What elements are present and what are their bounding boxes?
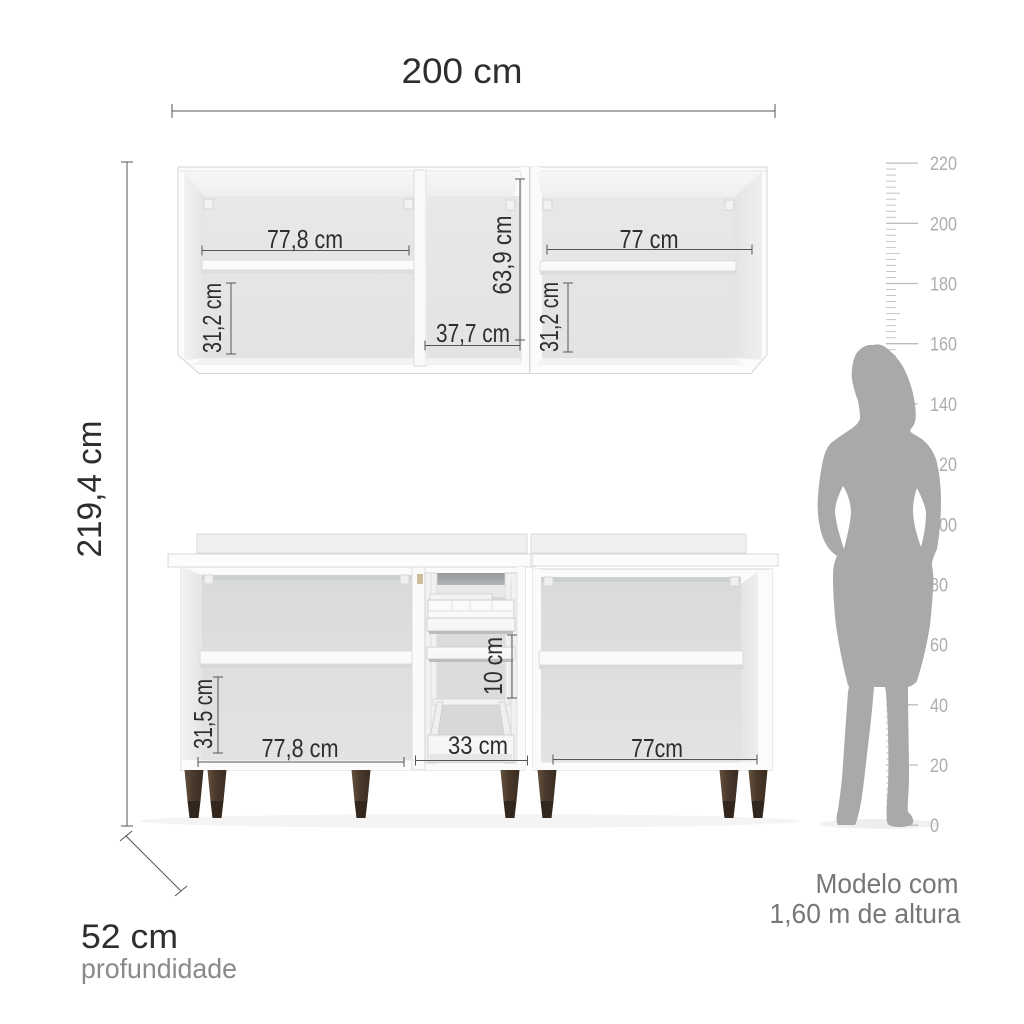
svg-text:20: 20 [930, 756, 948, 777]
svg-text:77cm: 77cm [631, 733, 683, 763]
svg-text:63,9 cm: 63,9 cm [487, 216, 517, 295]
svg-text:31,2 cm: 31,2 cm [534, 282, 564, 352]
svg-text:219,4 cm: 219,4 cm [71, 421, 109, 558]
svg-text:77,8 cm: 77,8 cm [267, 224, 343, 254]
svg-text:77,8 cm: 77,8 cm [262, 733, 339, 763]
svg-text:0: 0 [930, 816, 939, 837]
svg-text:140: 140 [930, 395, 957, 416]
svg-text:31,2 cm: 31,2 cm [197, 283, 227, 353]
svg-text:180: 180 [930, 274, 957, 295]
svg-text:160: 160 [930, 335, 957, 356]
svg-text:37,7 cm: 37,7 cm [436, 318, 510, 348]
svg-text:60: 60 [930, 636, 948, 657]
svg-text:200 cm: 200 cm [402, 52, 523, 91]
svg-text:profundidade: profundidade [81, 953, 237, 984]
svg-text:1,60 m de altura: 1,60 m de altura [770, 898, 961, 929]
svg-text:10 cm: 10 cm [478, 637, 508, 695]
svg-text:Modelo com: Modelo com [816, 868, 959, 899]
svg-text:33 cm: 33 cm [448, 732, 508, 760]
svg-text:52 cm: 52 cm [81, 918, 178, 956]
svg-text:220: 220 [930, 154, 957, 175]
svg-text:40: 40 [930, 696, 948, 717]
svg-text:31,5 cm: 31,5 cm [188, 679, 218, 749]
svg-text:200: 200 [930, 214, 957, 235]
